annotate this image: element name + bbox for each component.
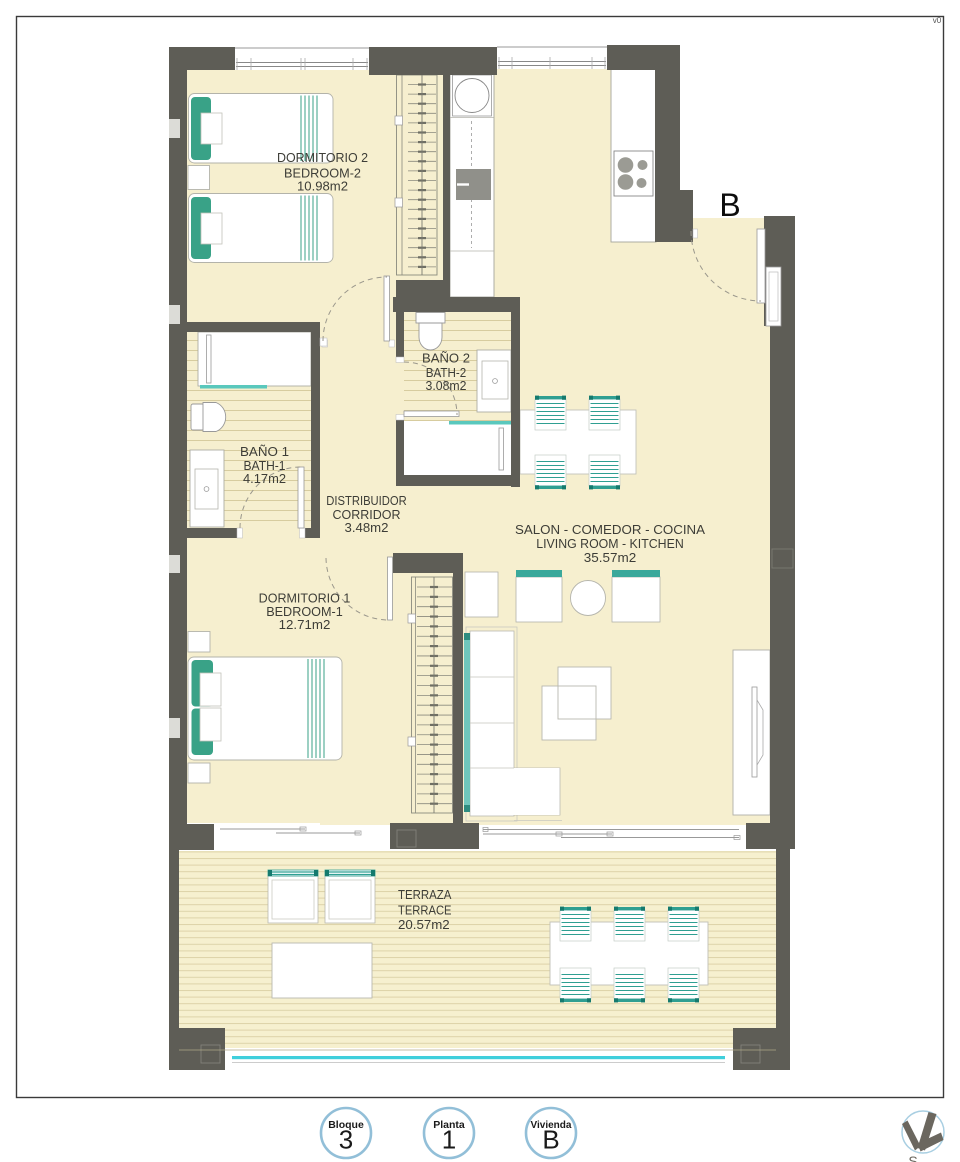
svg-text:35.57m2: 35.57m2 <box>584 550 637 565</box>
svg-text:20.57m2: 20.57m2 <box>398 917 450 932</box>
svg-text:SALON - COMEDOR - COCINA: SALON - COMEDOR - COCINA <box>515 522 705 537</box>
svg-text:4.17m2: 4.17m2 <box>243 471 286 486</box>
svg-text:DISTRIBUIDOR: DISTRIBUIDOR <box>326 493 407 508</box>
svg-text:TERRAZA: TERRAZA <box>398 887 452 902</box>
svg-text:TERRACE: TERRACE <box>398 903 452 918</box>
svg-text:BAÑO 1: BAÑO 1 <box>240 444 289 459</box>
svg-text:v0: v0 <box>933 16 942 25</box>
svg-text:3: 3 <box>339 1125 353 1155</box>
svg-text:B: B <box>719 187 740 223</box>
svg-text:BAÑO 2: BAÑO 2 <box>422 351 470 366</box>
svg-text:12.71m2: 12.71m2 <box>279 617 331 632</box>
svg-text:3.48m2: 3.48m2 <box>345 520 389 535</box>
svg-text:10.98m2: 10.98m2 <box>297 179 348 194</box>
svg-text:LIVING ROOM - KITCHEN: LIVING ROOM - KITCHEN <box>536 536 684 551</box>
svg-text:S: S <box>908 1153 917 1162</box>
svg-text:DORMITORIO 2: DORMITORIO 2 <box>277 150 368 165</box>
svg-text:1: 1 <box>442 1125 456 1155</box>
svg-text:B: B <box>542 1125 559 1155</box>
svg-text:3.08m2: 3.08m2 <box>426 378 467 393</box>
